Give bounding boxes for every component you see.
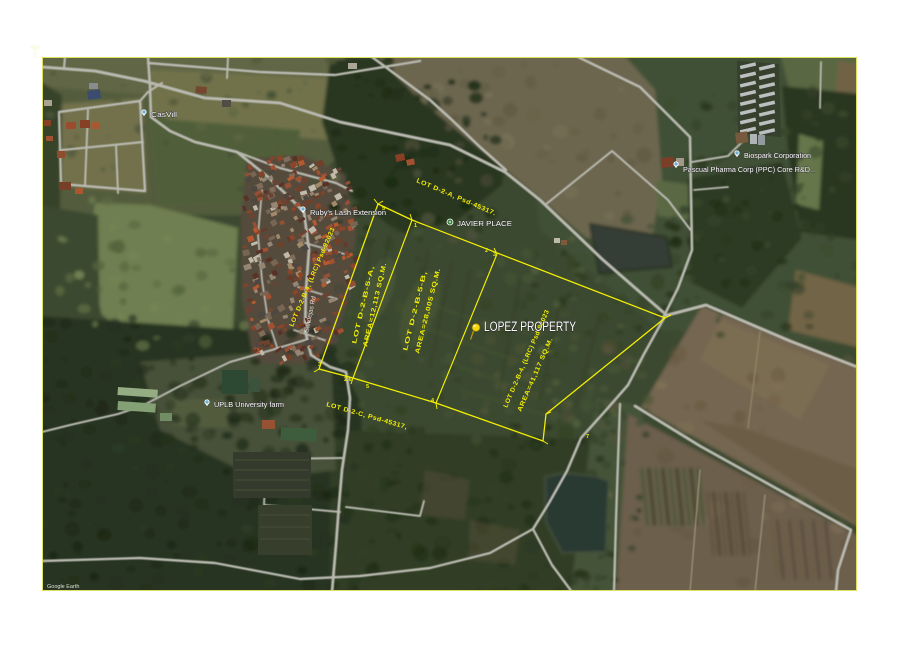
svg-text:3: 3 <box>318 362 321 368</box>
svg-text:2,6: 2,6 <box>344 377 352 383</box>
svg-text:Biospark Corporation: Biospark Corporation <box>744 151 811 160</box>
svg-text:2: 2 <box>485 248 488 254</box>
svg-text:Ruby's Lash Extension: Ruby's Lash Extension <box>310 208 386 217</box>
svg-text:Google Earth: Google Earth <box>47 584 79 590</box>
svg-text:3: 3 <box>493 252 496 258</box>
svg-text:CasVill: CasVill <box>151 110 177 119</box>
svg-text:1: 1 <box>414 223 417 229</box>
svg-text:UPLB University farm: UPLB University farm <box>214 400 284 409</box>
svg-text:7: 7 <box>586 434 589 440</box>
svg-text:LOPEZ PROPERTY: LOPEZ PROPERTY <box>484 319 576 334</box>
svg-text:5: 5 <box>366 384 369 390</box>
svg-text:JAVIER PLACE: JAVIER PLACE <box>457 219 512 228</box>
svg-text:Pascual Pharma Corp (PPC) Cor: Pascual Pharma Corp (PPC) Core R&D... <box>683 165 816 174</box>
